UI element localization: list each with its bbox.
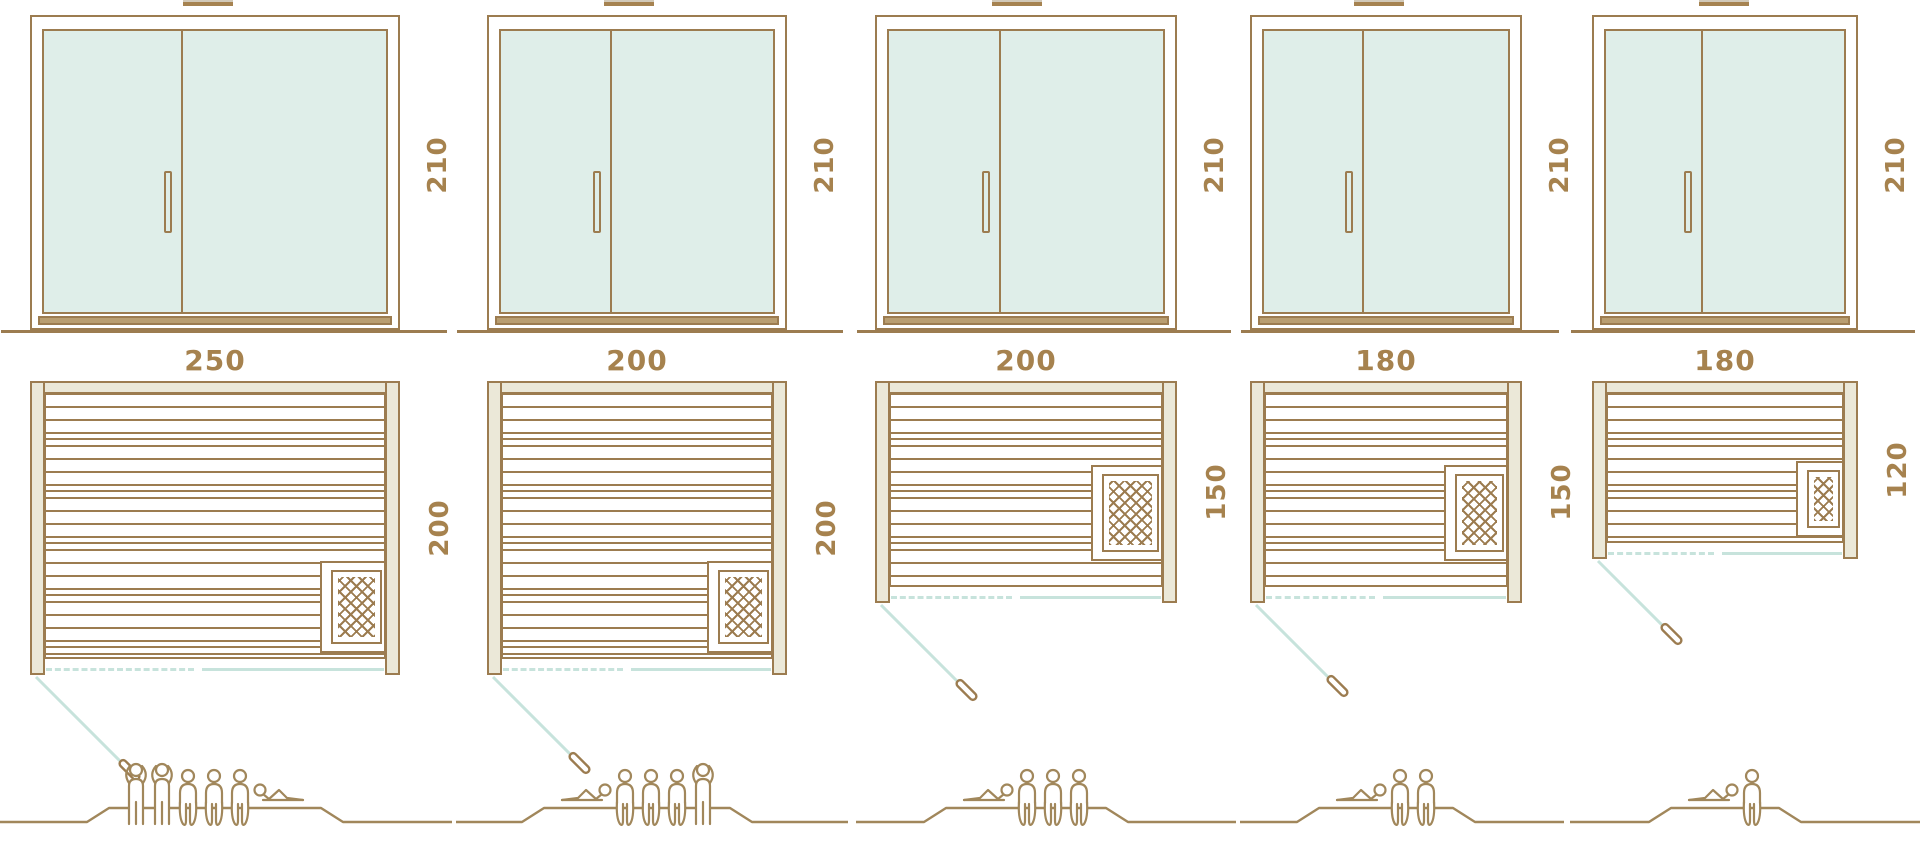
plan-post-left [487, 381, 502, 675]
person-sitting-icon [1392, 770, 1408, 825]
plan-post-left [1250, 381, 1265, 603]
top-cropped-bar [992, 0, 1042, 6]
heater [1455, 474, 1504, 552]
ground-line [857, 330, 1231, 333]
door-height-dimension: 210 [423, 125, 453, 205]
sauna-column-200x150: 210 200 150 [856, 0, 1236, 856]
top-cropped-bar [1354, 0, 1404, 6]
plan-depth-dimension: 200 [425, 488, 455, 568]
door-divider [999, 31, 1001, 312]
door-divider [181, 31, 183, 312]
door-opening-dashed-line [46, 668, 194, 671]
plan-top-beam [487, 381, 787, 394]
top-cropped-bar [183, 0, 233, 6]
person-standing-icon [693, 764, 713, 824]
door-sill [1258, 316, 1514, 325]
door-sill [38, 316, 392, 325]
plan-post-right [1507, 381, 1522, 603]
door-sill [1600, 316, 1850, 325]
door-opening-solid-line [631, 668, 771, 671]
capacity-figures [856, 752, 1236, 856]
heater-enclosure [1091, 465, 1163, 561]
door-divider [1701, 31, 1703, 312]
floor-plan: 150 [875, 381, 1177, 603]
door-handle [593, 171, 601, 233]
person-lying-icon [562, 785, 611, 801]
heater-grill [1109, 481, 1152, 545]
door-handle [164, 171, 172, 233]
door-sill [883, 316, 1169, 325]
sauna-column-180x150: 210 180 150 [1240, 0, 1564, 856]
plan-top-beam [875, 381, 1177, 394]
capacity-figures [0, 752, 452, 856]
heater-enclosure [320, 561, 386, 653]
person-lying-icon [255, 785, 304, 801]
plan-width-dimension: 250 [30, 344, 400, 377]
plan-top-beam [30, 381, 400, 394]
person-lying-icon [964, 785, 1013, 801]
person-sitting-icon [643, 770, 659, 825]
person-sitting-icon [206, 770, 222, 825]
door-elevation: 210 [487, 15, 787, 330]
ground-line [1571, 330, 1915, 333]
door-elevation: 210 [1250, 15, 1522, 330]
person-lying-icon [1337, 785, 1386, 801]
heater-grill [1814, 477, 1833, 521]
swing-handle-icon [1326, 675, 1349, 698]
plan-post-right [772, 381, 787, 675]
floor-plan: 200 [30, 381, 400, 675]
floor-plan: 120 [1592, 381, 1858, 559]
plan-post-right [1843, 381, 1858, 559]
plan-post-right [1162, 381, 1177, 603]
ground-line [1241, 330, 1559, 333]
door-handle [982, 171, 990, 233]
person-sitting-icon [180, 770, 196, 825]
door-height-dimension: 210 [1881, 125, 1911, 205]
heater-grill [338, 577, 375, 637]
sauna-column-200x200: 210 200 200 [456, 0, 848, 856]
door-opening-dashed-line [503, 668, 623, 671]
door-swing-line [1246, 603, 1396, 743]
door-glass [42, 29, 388, 314]
heater [1807, 470, 1840, 528]
person-sitting-icon [1071, 770, 1087, 825]
plan-depth-dimension: 120 [1883, 430, 1913, 510]
heater-grill [1462, 481, 1497, 545]
door-glass [499, 29, 775, 314]
bench-slats [1264, 393, 1508, 587]
plan-width-dimension: 200 [487, 344, 787, 377]
bench-slats [889, 393, 1163, 587]
plan-post-left [1592, 381, 1607, 559]
door-opening-dashed-line [891, 596, 1012, 599]
sauna-diagram: 210 250 200 [0, 0, 1920, 856]
plan-post-left [875, 381, 890, 603]
swing-handle-icon [1660, 623, 1683, 646]
person-sitting-icon [669, 770, 685, 825]
door-elevation: 210 [875, 15, 1177, 330]
capacity-figures [456, 752, 848, 856]
person-sitting-icon [1045, 770, 1061, 825]
door-glass [1262, 29, 1510, 314]
door-opening-dashed-line [1608, 552, 1714, 555]
capacity-figures [1570, 752, 1920, 856]
plan-depth-dimension: 150 [1202, 452, 1232, 532]
heater [718, 570, 769, 644]
person-sitting-icon [1019, 770, 1035, 825]
person-lying-icon [1689, 785, 1738, 801]
bench-slats [44, 393, 386, 659]
plan-top-beam [1250, 381, 1522, 394]
heater [331, 570, 382, 644]
swing-handle-icon [955, 679, 978, 702]
ground-line [1, 330, 447, 333]
door-opening-dashed-line [1266, 596, 1375, 599]
door-divider [1362, 31, 1364, 312]
door-height-dimension: 210 [1200, 125, 1230, 205]
bench-slats [501, 393, 773, 659]
ground-line [457, 330, 843, 333]
floor-plan: 150 [1250, 381, 1522, 603]
person-sitting-icon [232, 770, 248, 825]
person-sitting-icon [1744, 770, 1760, 825]
door-sill [495, 316, 779, 325]
door-swing-line [1588, 559, 1738, 699]
capacity-figures [1240, 752, 1564, 856]
sauna-column-250x200: 210 250 200 [0, 0, 452, 856]
plan-width-dimension: 180 [1592, 344, 1858, 377]
door-handle [1684, 171, 1692, 233]
door-elevation: 210 [1592, 15, 1858, 330]
plan-top-beam [1592, 381, 1858, 394]
top-cropped-bar [1699, 0, 1749, 6]
person-standing-icon [126, 764, 146, 824]
plan-width-dimension: 180 [1250, 344, 1522, 377]
heater-enclosure [1444, 465, 1508, 561]
people-ground-line [0, 808, 452, 822]
heater-grill [725, 577, 762, 637]
door-opening-solid-line [1383, 596, 1506, 599]
door-swing-line [871, 603, 1021, 743]
sauna-column-180x120: 210 180 120 [1570, 0, 1920, 856]
bench-slats [1606, 393, 1844, 543]
door-height-dimension: 210 [810, 125, 840, 205]
person-sitting-icon [617, 770, 633, 825]
door-glass [1604, 29, 1846, 314]
heater-enclosure [707, 561, 773, 653]
top-cropped-bar [604, 0, 654, 6]
plan-post-left [30, 381, 45, 675]
door-glass [887, 29, 1165, 314]
plan-width-dimension: 200 [875, 344, 1177, 377]
plan-depth-dimension: 200 [812, 488, 842, 568]
door-opening-solid-line [1722, 552, 1842, 555]
floor-plan: 200 [487, 381, 787, 675]
plan-post-right [385, 381, 400, 675]
heater [1102, 474, 1159, 552]
heater-enclosure [1796, 461, 1844, 537]
door-handle [1345, 171, 1353, 233]
person-sitting-icon [1418, 770, 1434, 825]
door-opening-solid-line [1020, 596, 1161, 599]
door-divider [610, 31, 612, 312]
door-elevation: 210 [30, 15, 400, 330]
person-standing-icon [152, 764, 172, 824]
door-opening-solid-line [202, 668, 384, 671]
